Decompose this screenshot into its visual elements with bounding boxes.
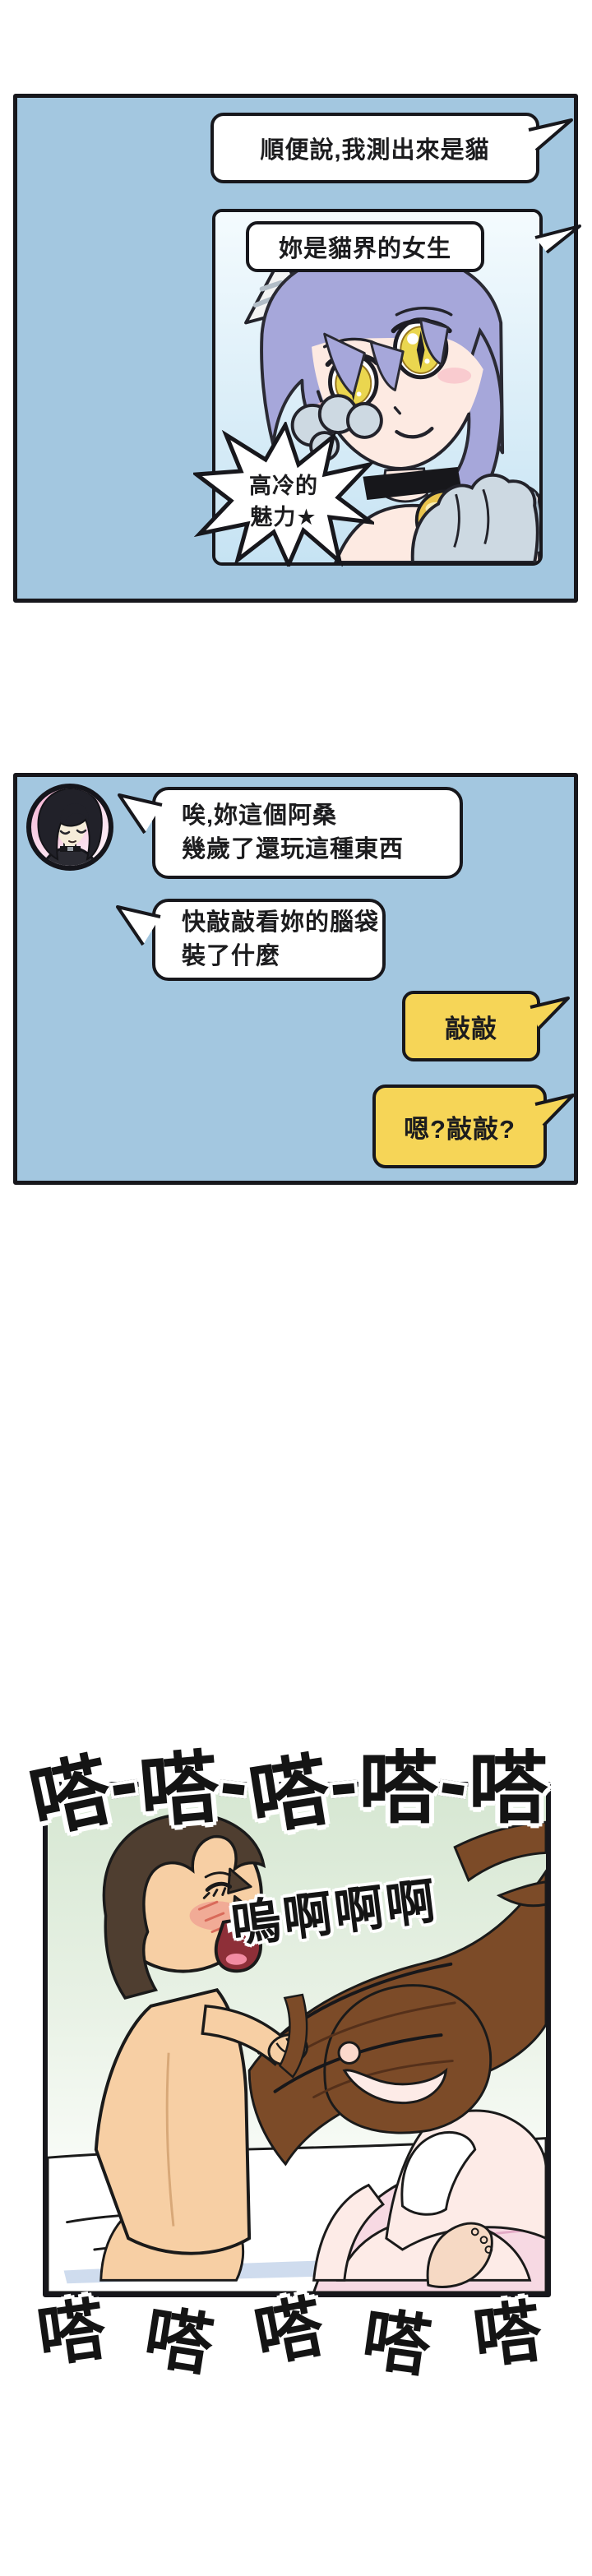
speech-tail-right-icon	[530, 223, 585, 256]
reply-bubble: 嗯?敲敲?	[372, 1085, 547, 1168]
speech-text: 幾歲了還玩這種東西	[182, 833, 404, 867]
speech-bubble: 快敲敲看妳的腦袋 裝了什麼	[152, 899, 386, 981]
sfx-dash	[109, 1779, 139, 1800]
reply-bubble: 敲敲	[402, 991, 540, 1061]
sfx-char: 嗒	[34, 2296, 110, 2373]
sfx-dash	[438, 1779, 468, 1800]
sfx-char: 嗒	[244, 1750, 335, 1841]
sfx-dash	[329, 1780, 358, 1799]
speech-tail-left-icon	[116, 792, 167, 836]
speech-tail-right-icon	[525, 996, 573, 1032]
sfx-char: 嗒	[358, 2306, 435, 2383]
sfx-char: 嗒	[136, 1748, 222, 1834]
reply-text: 嗯?敲敲?	[404, 1108, 516, 1145]
speech-bubble: 唉,妳這個阿桑 幾歲了還玩這種東西	[152, 787, 463, 879]
sfx-row-top: 嗒 嗒 嗒 嗒 嗒	[30, 1725, 548, 1853]
sfx-char: 嗒	[359, 1750, 438, 1829]
sfx-row-bottom: 嗒 嗒 嗒 嗒 嗒	[38, 2287, 541, 2378]
sfx-char: 嗒	[141, 2304, 218, 2381]
avatar	[26, 784, 113, 871]
speech-bubble: 順便說,我測出來是貓	[210, 113, 539, 183]
speech-text: 裝了什麼	[182, 940, 280, 974]
starburst-bubble: 高冷的 魅力★	[193, 422, 374, 567]
sfx-char: 嗒	[250, 2293, 329, 2372]
speech-text: 快敲敲看妳的腦袋	[182, 906, 379, 940]
comic-page: 順便說,我測出來是貓	[0, 0, 592, 2576]
woman-ear	[339, 2042, 359, 2064]
speech-tail-left-icon	[114, 904, 165, 948]
starburst-text: 高冷的	[193, 468, 374, 500]
panel-cat-girl: 順便說,我測出來是貓	[13, 94, 578, 603]
speech-text: 妳是貓界的女生	[279, 229, 451, 264]
reply-text: 敲敲	[445, 1008, 497, 1045]
panel-bedroom-scene: 嗚啊啊啊	[43, 1782, 551, 2297]
panel-chat: 唉,妳這個阿桑 幾歲了還玩這種東西 快敲敲看妳的腦袋 裝了什麼 敲敲 嗯?敲敲?	[13, 773, 578, 1185]
sfx-dash	[219, 1779, 248, 1798]
speech-tail-right-icon	[530, 1093, 578, 1129]
speech-text: 唉,妳這個阿桑	[182, 799, 337, 833]
speech-bubble: 妳是貓界的女生	[246, 221, 484, 272]
speech-text: 順便說,我測出來是貓	[260, 131, 489, 165]
sfx-char: 嗒	[24, 1750, 118, 1844]
sfx-char: 嗒	[469, 1750, 548, 1829]
starburst-text: 魅力★	[193, 499, 374, 531]
sfx-char: 嗒	[470, 2298, 545, 2373]
speech-tail-right-icon	[522, 118, 576, 154]
